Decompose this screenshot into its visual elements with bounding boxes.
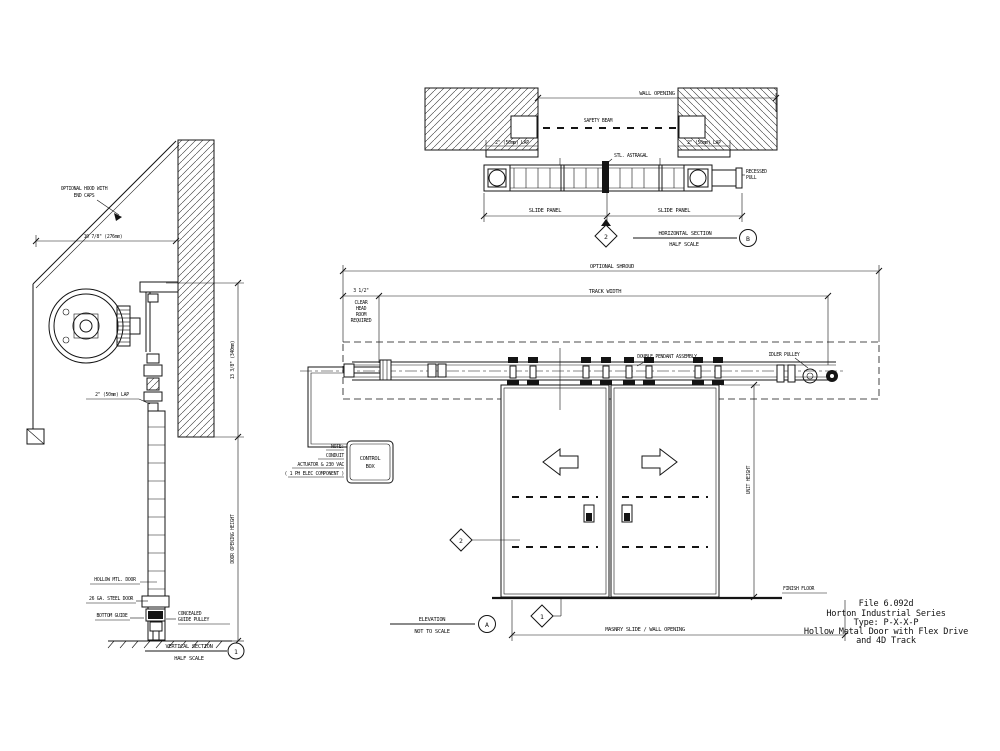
- shroud-dimension: OPTIONAL SHROUD: [340, 264, 882, 342]
- opening-height-dim-label: DOOR OPENING HEIGHT: [230, 514, 236, 564]
- operator-assembly: [49, 282, 178, 411]
- vertical-section-scale: HALF SCALE: [174, 656, 204, 662]
- elevation-scale: NOT TO SCALE: [414, 629, 449, 635]
- masonry-dim-label: MASNRY SLIDE / WALL OPENING: [605, 627, 685, 633]
- cut-marker-2-number: 2: [459, 537, 463, 545]
- note-line-1: NOTE:: [331, 444, 344, 450]
- control-box-label-2: BOX: [366, 464, 376, 470]
- vertical-section-view: OPTIONAL HOOD WITH END CAPS 10 7/8" (276…: [27, 140, 244, 662]
- horizontal-section-scale: HALF SCALE: [669, 242, 699, 248]
- headroom-dim-label: 13 3/8" (340mm): [230, 341, 236, 380]
- pull-label-2: PULL: [746, 175, 757, 181]
- pulley-label-1: CONCEALED: [178, 611, 202, 617]
- description-line2: and 4D Track: [856, 636, 917, 646]
- hood-dimension: 10 7/8" (276mm): [33, 234, 179, 247]
- reference-letter: A: [485, 621, 489, 629]
- safety-beam-label: SAFETY BEAM: [584, 118, 613, 124]
- lap-note-callout: 2" (50mm) LAP: [86, 392, 150, 404]
- file-number: File 6.092d: [859, 599, 914, 609]
- wall-opening-dim-label: WALL OPENING: [639, 91, 674, 97]
- slide-panel-left-label: SLIDE PANEL: [529, 208, 561, 214]
- door-section: [142, 411, 169, 641]
- wall-section: [178, 140, 214, 437]
- clear-label-1: CLEAR: [355, 300, 368, 306]
- elevation-title: ELEVATION: [419, 617, 446, 623]
- astragal-label: STL. ASTRAGAL: [614, 153, 648, 159]
- lap-note-label: 2" (50mm) LAP: [95, 392, 129, 398]
- masonry-opening-dimension: MASNRY SLIDE / WALL OPENING: [509, 600, 848, 641]
- slide-panel-right-label: SLIDE PANEL: [658, 208, 690, 214]
- cut-marker-1-number: 1: [540, 613, 544, 621]
- control-box-label-1: CONTROL: [360, 456, 381, 462]
- lap-left-label: 2" (50mm) LAP: [495, 140, 529, 146]
- conduit-run: [308, 367, 347, 447]
- vertical-section-caption: VERTICAL SECTION HALF SCALE 1: [145, 643, 244, 662]
- pull-callout: RECESSED PULL: [742, 169, 767, 181]
- cad-drawing-sheet: WALL OPENING SAFETY BEAM 2" (50mm) LAP 2…: [0, 0, 1000, 751]
- door-panels-elevation: [501, 348, 719, 597]
- section-marker-number: 2: [604, 233, 608, 241]
- hood-note-line1: OPTIONAL HOOD WITH: [61, 186, 108, 192]
- control-box: CONTROL BOX: [347, 441, 393, 483]
- horizontal-section-title: HORIZONTAL SECTION: [658, 231, 711, 237]
- track-width-dim-label: TRACK WIDTH: [589, 289, 621, 295]
- hood-note-line2: END CAPS: [74, 193, 95, 199]
- astragal-bar: [602, 161, 609, 193]
- reference-letter: B: [746, 235, 750, 243]
- idler-pulley: IDLER PULLEY: [768, 352, 838, 383]
- steel-label: 26 GA. STEEL DOOR: [89, 596, 133, 602]
- reference-number: 1: [234, 648, 238, 656]
- clear-label-3: ROOM: [356, 312, 367, 318]
- pulley-label-2: GUIDE PULLEY: [178, 617, 209, 623]
- pendant-label: DOUBLE PENDANT ASSEMBLY: [637, 354, 697, 360]
- door-panels-plan: [484, 158, 742, 193]
- unit-height-dim-label: UNIT HEIGHT: [746, 465, 752, 494]
- slide-panel-dimensions: SLIDE PANEL SLIDE PANEL: [481, 193, 745, 222]
- drawing-canvas: WALL OPENING SAFETY BEAM 2" (50mm) LAP 2…: [0, 0, 1000, 751]
- horizontal-section-view: WALL OPENING SAFETY BEAM 2" (50mm) LAP 2…: [425, 88, 779, 248]
- title-block: File 6.092d Horton Industrial Series Typ…: [804, 599, 968, 646]
- horizontal-section-caption: 2 HORIZONTAL SECTION HALF SCALE B: [595, 219, 757, 248]
- section-cut-marker-1: 1: [531, 599, 561, 627]
- astragal-callout: STL. ASTRAGAL: [606, 153, 648, 164]
- note-line-2: CONDUIT: [326, 453, 345, 459]
- vertical-section-title: VERTICAL SECTION: [165, 644, 212, 650]
- door-label: HOLLOW MTL. DOOR: [94, 577, 136, 583]
- hood-dim-label: 10 7/8" (276mm): [84, 234, 123, 240]
- idler-label: IDLER PULLEY: [768, 352, 799, 358]
- clear-label-4: REQUIRED: [351, 318, 372, 324]
- unit-height-dimension: UNIT HEIGHT: [721, 382, 760, 600]
- note-line-4: ( 1 PH ELEC COMPONENT ): [284, 471, 344, 477]
- elevation-view: OPTIONAL SHROUD TRACK WIDTH 3 1/2" CLEAR…: [284, 264, 882, 641]
- pull-label-1: RECESSED: [746, 169, 767, 175]
- shroud-dim-label: OPTIONAL SHROUD: [590, 264, 634, 270]
- safety-beam: SAFETY BEAM: [543, 118, 676, 128]
- finish-floor-label: FINISH FLOOR: [783, 586, 814, 592]
- elevation-caption: ELEVATION NOT TO SCALE A: [390, 616, 496, 636]
- clear-dim-label: 3 1/2": [353, 288, 369, 294]
- lap-right-label: 2" (50mm) LAP: [687, 140, 721, 146]
- clear-label-2: HEAD: [356, 306, 367, 312]
- guide-label: BOTTOM GUIDE: [96, 613, 127, 619]
- electrical-note: NOTE: CONDUIT ACTUATOR & 230 VAC ( 1 PH …: [284, 444, 344, 477]
- track-assembly: [300, 360, 843, 380]
- track-width-dimension: TRACK WIDTH 3 1/2" CLEAR HEAD ROOM REQUI…: [340, 288, 831, 365]
- note-line-3: ACTUATOR & 230 VAC: [297, 462, 344, 468]
